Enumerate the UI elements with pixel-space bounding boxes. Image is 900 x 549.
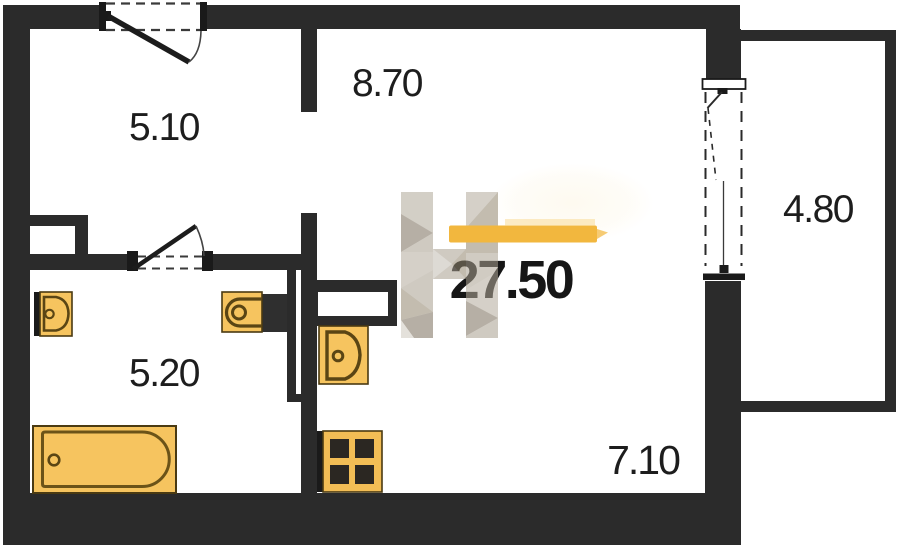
svg-text:5.20: 5.20 (129, 352, 200, 395)
svg-text:5.10: 5.10 (129, 106, 200, 149)
svg-text:7.10: 7.10 (607, 437, 680, 483)
svg-text:8.70: 8.70 (352, 62, 423, 105)
svg-text:4.80: 4.80 (783, 188, 854, 231)
